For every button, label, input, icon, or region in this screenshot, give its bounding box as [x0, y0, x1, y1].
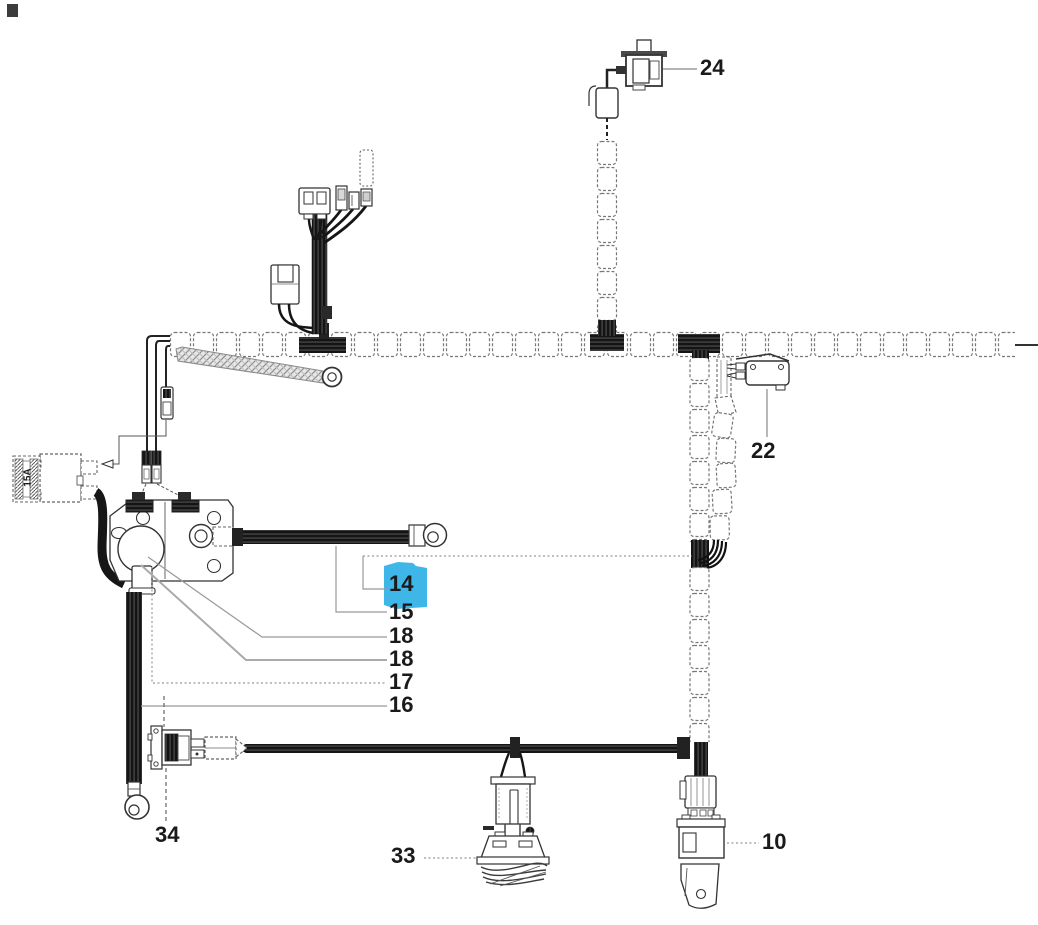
leader-14	[363, 556, 387, 589]
callout-label-14[interactable]: 14	[389, 573, 413, 595]
bottom-wire-run	[236, 737, 708, 776]
callout-label-24[interactable]: 24	[700, 57, 724, 79]
connector-slim-tall	[360, 150, 373, 206]
spade-terminal-1	[142, 451, 151, 483]
wire-loom-angled	[710, 412, 736, 540]
spring-washer-hatch	[481, 863, 547, 886]
callout-label-18a[interactable]: 18	[389, 625, 413, 647]
harness-diagram-art	[0, 0, 1038, 925]
component-22-switch	[727, 354, 789, 390]
connector-10-housing	[680, 776, 716, 808]
connector-left-lower	[271, 265, 313, 333]
inline-fuse	[161, 387, 173, 419]
wire-loom-vertical-top	[596, 140, 618, 332]
terminal-small-2	[349, 192, 359, 209]
starter-solenoid	[110, 492, 243, 594]
callout-label-15[interactable]: 15	[389, 601, 413, 623]
callout-label-18b[interactable]: 18	[389, 648, 413, 670]
callout-label-17[interactable]: 17	[389, 671, 413, 693]
battery-cable-right	[243, 524, 447, 547]
corner-mark	[7, 4, 18, 17]
rubber-boot	[681, 864, 719, 908]
component-10-group	[677, 776, 725, 908]
spade-terminal-2	[152, 451, 161, 483]
connector-two-cavity	[299, 188, 330, 219]
component-33-group	[477, 753, 549, 886]
terminal-small-1	[336, 186, 347, 210]
fuse-rating-label: 15A	[23, 465, 34, 491]
left-feed-wires	[102, 336, 191, 506]
component-34	[148, 726, 247, 769]
connector-34-mate	[205, 737, 247, 759]
leader-15	[336, 546, 387, 612]
diagram-canvas: 24 22 14 15 18 18 17 16 34 33 10 15A	[0, 0, 1038, 925]
callout-label-33[interactable]: 33	[391, 845, 415, 867]
branch-connectors-top	[271, 150, 373, 334]
callout-label-22[interactable]: 22	[751, 440, 775, 462]
callout-label-16[interactable]: 16	[389, 694, 413, 716]
wire-loom-vertical-right	[689, 357, 736, 742]
callout-label-10[interactable]: 10	[762, 831, 786, 853]
callout-label-34[interactable]: 34	[155, 824, 179, 846]
component-24-switch	[589, 40, 667, 140]
